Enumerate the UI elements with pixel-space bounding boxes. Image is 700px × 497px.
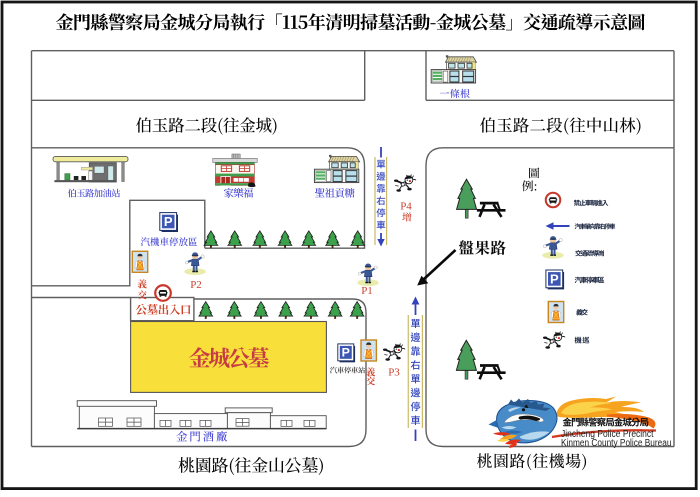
- svg-text:Kinmen County Police Bureau: Kinmen County Police Bureau: [561, 438, 672, 449]
- svg-text:P3: P3: [388, 367, 400, 379]
- svg-text:P4: P4: [400, 201, 412, 213]
- svg-text:P1: P1: [361, 285, 373, 297]
- svg-text:P2: P2: [190, 279, 202, 291]
